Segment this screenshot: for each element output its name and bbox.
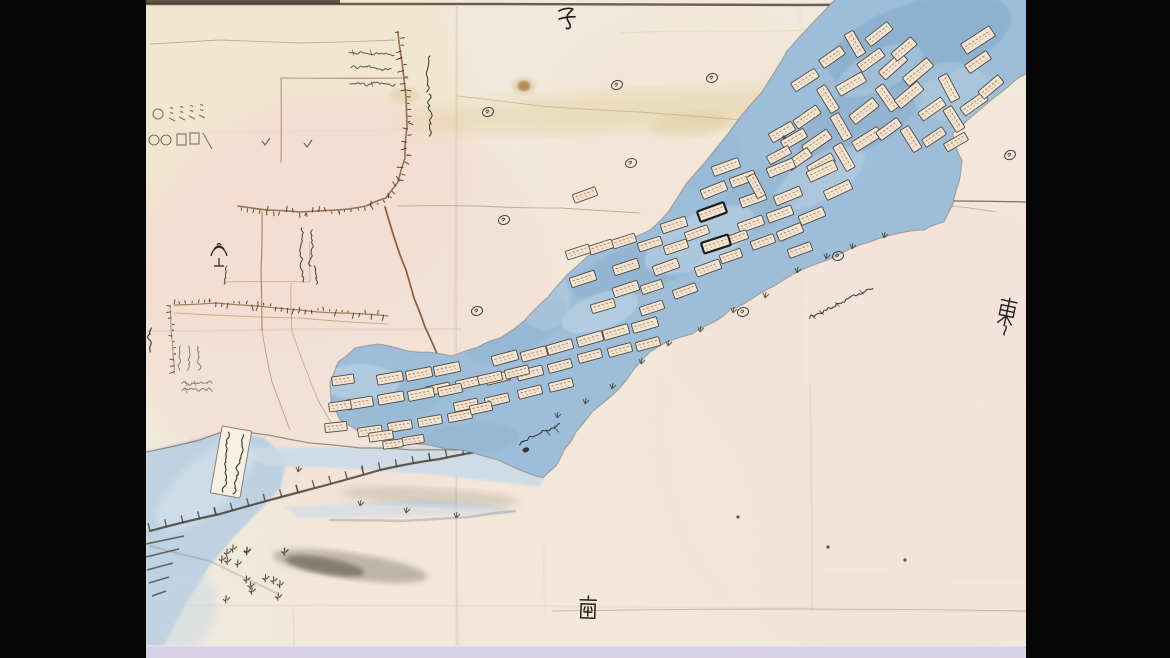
roadside-tree-tick xyxy=(358,208,359,211)
roadside-tree-tick xyxy=(344,210,345,212)
left-black-bar xyxy=(0,0,146,658)
roadside-tree-tick xyxy=(342,310,343,312)
stain xyxy=(513,78,535,94)
roadside-tree-tick xyxy=(378,310,379,314)
roadside-tree-tick xyxy=(400,83,406,84)
ink-speck xyxy=(736,515,739,518)
roadside-tree-tick xyxy=(395,32,399,33)
roadside-tree-tick xyxy=(407,103,409,104)
historical-river-map-photo: 南 子南東 xyxy=(0,0,1170,658)
roadside-tree-tick xyxy=(401,141,407,142)
roadside-tree-tick xyxy=(210,299,211,302)
scan-strip xyxy=(146,646,1026,658)
roadside-tree-tick xyxy=(247,208,248,212)
right-black-bar xyxy=(1026,0,1170,658)
roadside-tree-tick xyxy=(172,324,175,325)
bottom-scan-strip xyxy=(146,645,1026,658)
video-frame: 南 子南東 xyxy=(0,0,1170,658)
roadside-tree-tick xyxy=(174,354,175,355)
roadside-tree-tick xyxy=(172,330,174,331)
roadside-tree-tick xyxy=(299,213,300,218)
roadside-tree-tick xyxy=(339,211,340,213)
ink-speck xyxy=(826,545,829,548)
roadside-tree-tick xyxy=(311,310,312,314)
ink-speck xyxy=(782,135,785,138)
scan-strip-edge xyxy=(146,645,1026,647)
roadside-tree-tick xyxy=(400,38,405,39)
roadside-tree-tick xyxy=(263,303,264,306)
roadside-tree-tick xyxy=(336,309,337,311)
ink-speck xyxy=(903,558,906,561)
roadside-tree-tick xyxy=(287,308,288,313)
roadside-tree-tick xyxy=(408,116,412,117)
roadside-tree-tick xyxy=(299,307,300,309)
roadside-tree-tick xyxy=(170,366,175,367)
roadside-tree-tick xyxy=(166,312,171,313)
roadside-tree-tick xyxy=(365,310,366,314)
roadside-tree-tick xyxy=(241,207,242,210)
village-tag xyxy=(325,421,348,432)
